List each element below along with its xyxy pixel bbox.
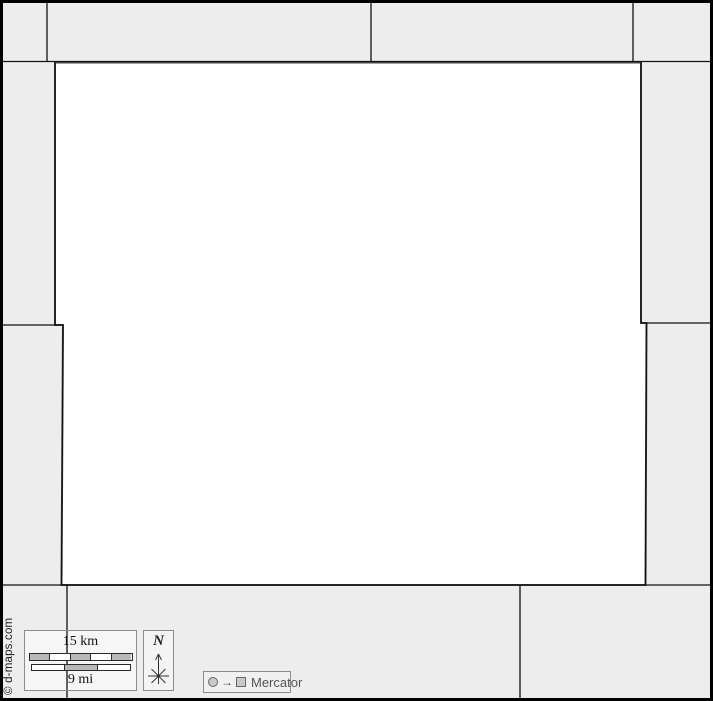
north-label: N <box>153 632 164 651</box>
scale-mi-bar <box>31 664 131 671</box>
scale-segment <box>90 654 111 660</box>
flat-map-icon <box>236 677 246 687</box>
scale-segment <box>49 654 70 660</box>
scale-km-bar <box>29 653 133 661</box>
map-canvas: © d-maps.com 15 km 9 mi N <box>0 0 713 701</box>
compass-icon <box>145 651 172 688</box>
sphere-icon <box>208 677 218 687</box>
projection-label: Mercator <box>249 675 302 690</box>
projection-arrow-icon: → <box>221 677 233 687</box>
scale-segment <box>30 654 50 660</box>
scale-segment <box>70 654 91 660</box>
scale-segment <box>97 665 130 670</box>
scale-km-label: 15 km <box>63 633 98 651</box>
copyright-text: © d-maps.com <box>3 605 19 695</box>
scale-bar: 15 km 9 mi <box>24 630 137 691</box>
base-map-svg <box>0 0 713 701</box>
projection-badge: → Mercator <box>203 671 291 693</box>
scale-segment <box>32 665 64 670</box>
north-indicator: N <box>143 630 174 691</box>
scale-segment <box>64 665 97 670</box>
main-region-shape <box>55 63 647 586</box>
scale-segment <box>111 654 132 660</box>
scale-mi-label: 9 mi <box>68 671 93 689</box>
